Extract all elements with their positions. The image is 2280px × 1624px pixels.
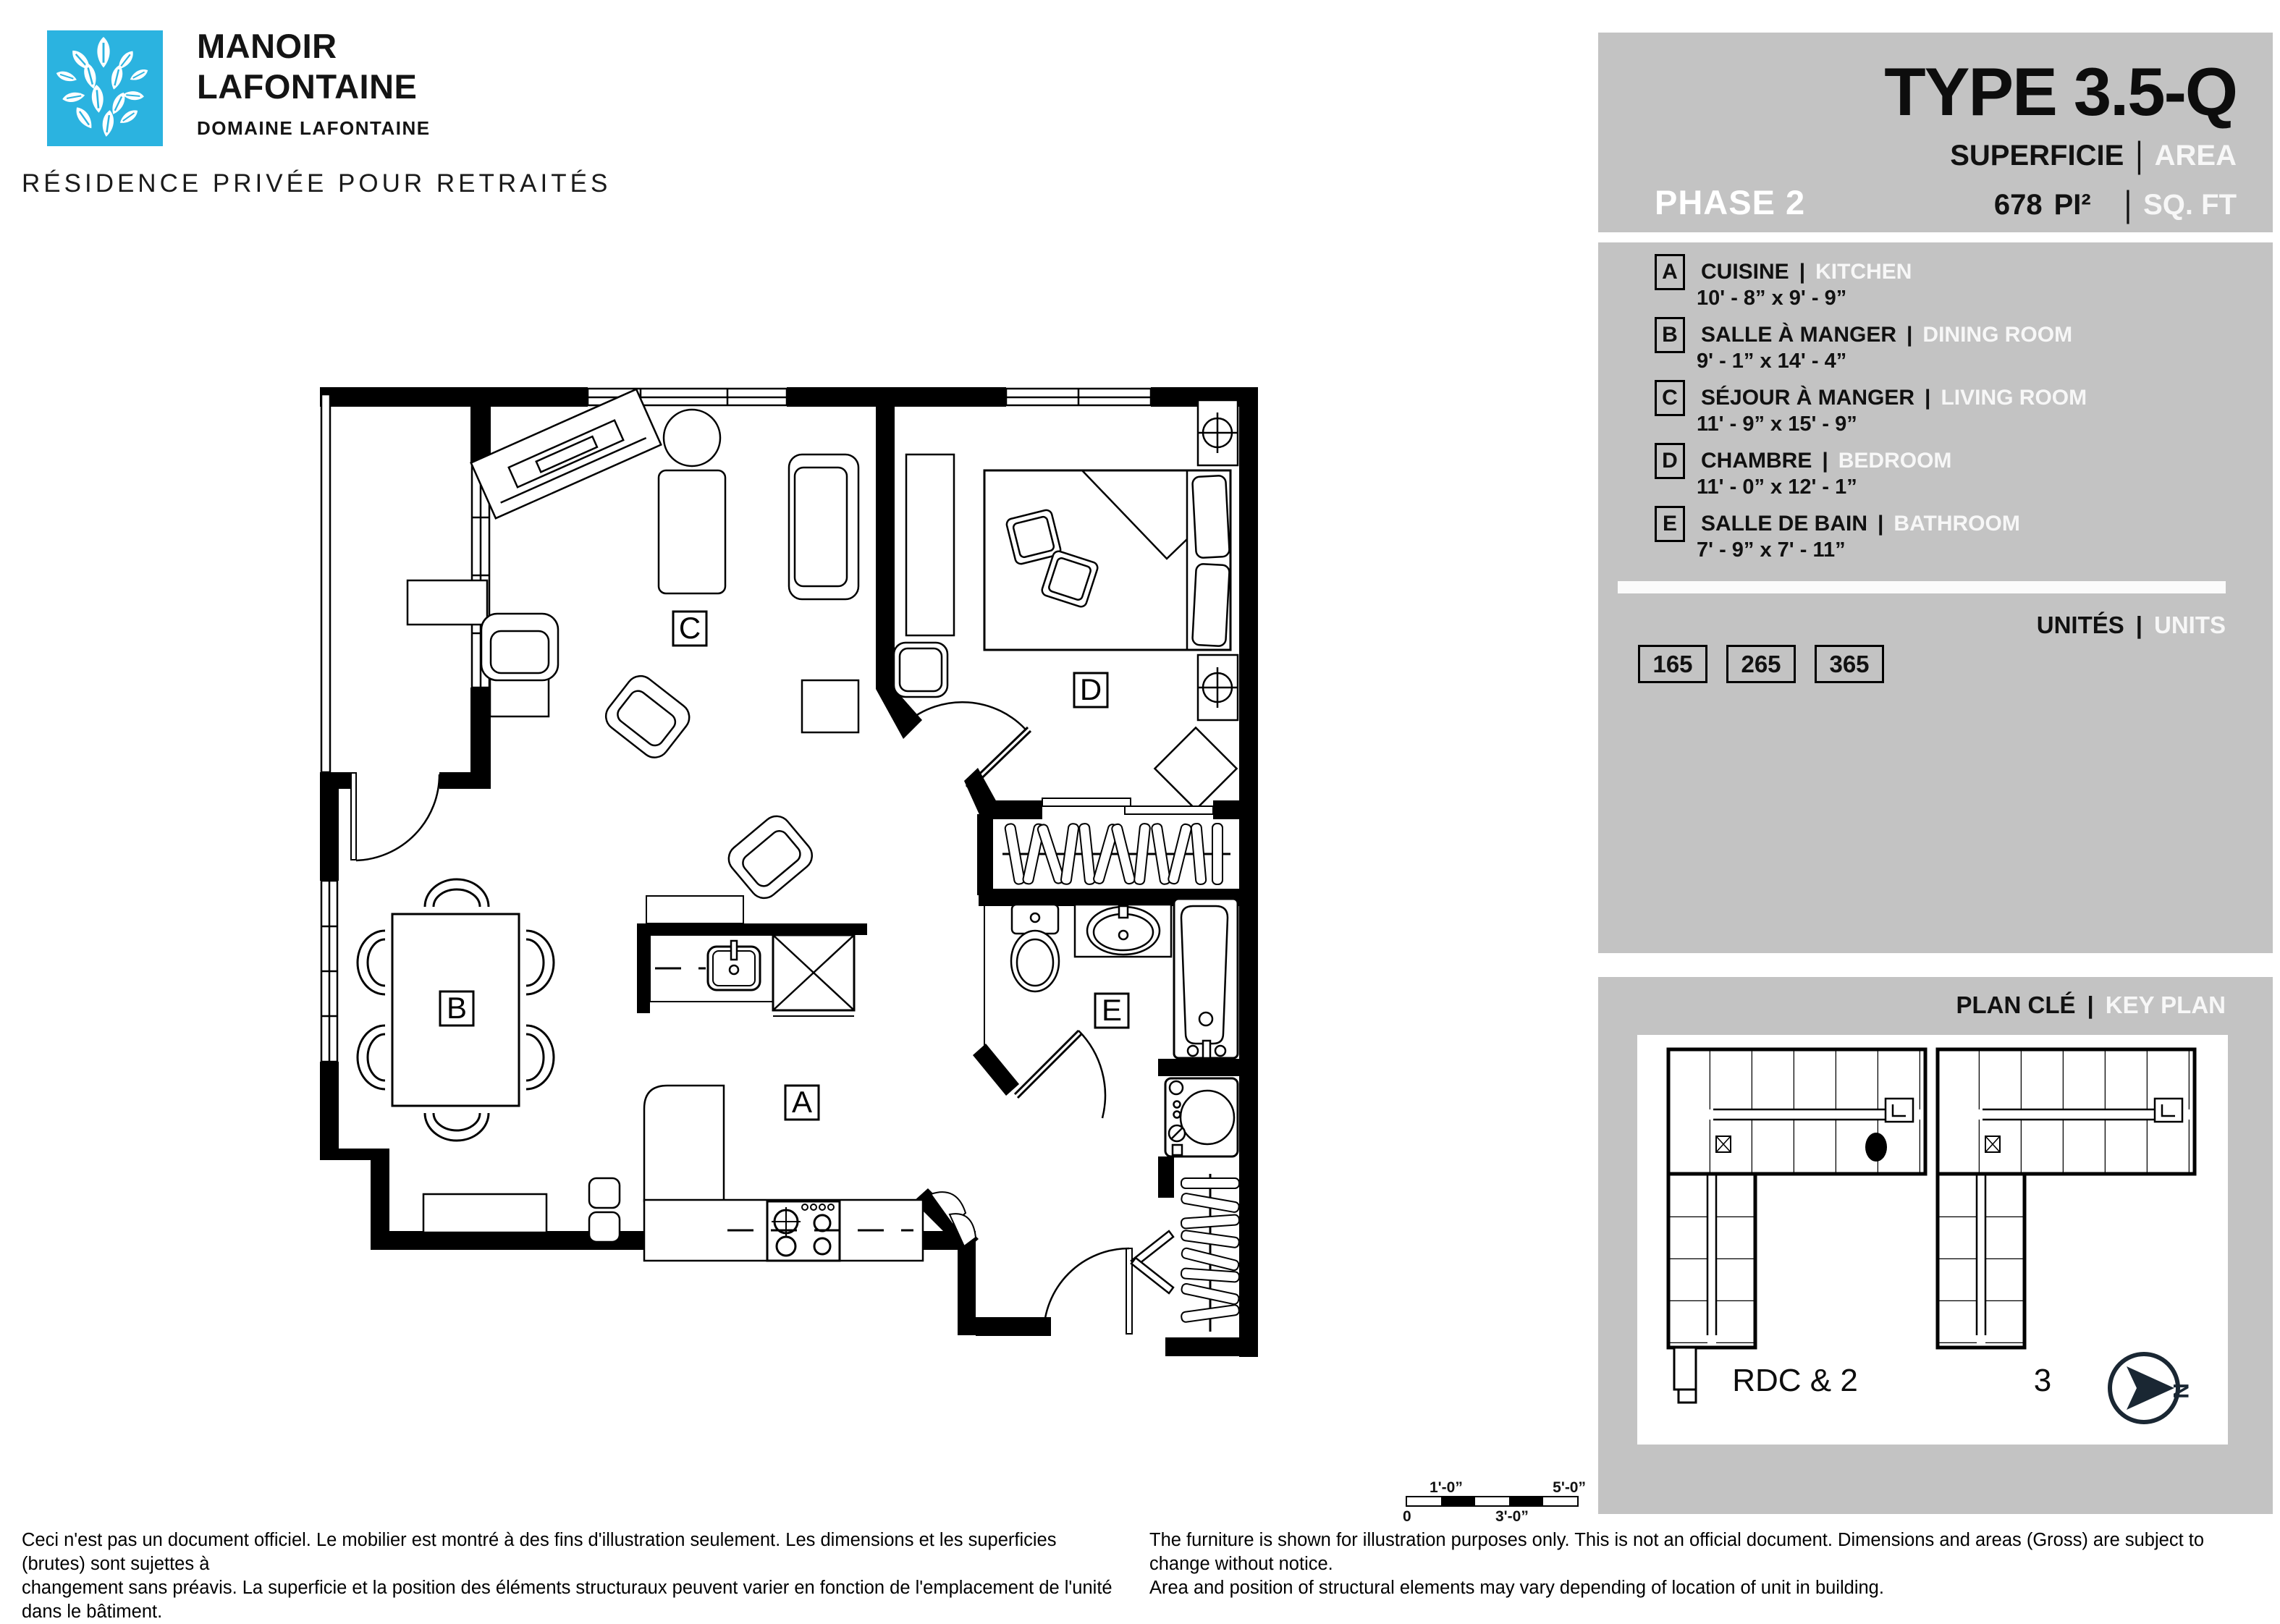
- unit-number-badge: 365: [1815, 645, 1884, 683]
- ottoman: [894, 643, 947, 697]
- sideboard: [423, 1194, 546, 1232]
- area-value-row: 678 PI² | SQ. FT: [1994, 189, 2237, 221]
- sliding-door: [1125, 806, 1213, 814]
- unit-number-badge: 165: [1638, 645, 1707, 683]
- divider-bar: |: [1822, 449, 1828, 473]
- room-label-E: E: [1095, 993, 1128, 1028]
- room-name-en: BEDROOM: [1838, 449, 1952, 473]
- kitchen-fixtures: [589, 896, 976, 1261]
- legend-panel: A CUISINE | KITCHEN 10' - 8” x 9' - 9” B…: [1598, 242, 2273, 953]
- phase-label: PHASE 2: [1655, 182, 1805, 222]
- unit-number-badge: 265: [1726, 645, 1796, 683]
- entry-closet: [1181, 1174, 1239, 1332]
- room-label-B: B: [440, 991, 473, 1025]
- island-bar: [646, 896, 743, 923]
- corner-chair: [1154, 727, 1236, 809]
- entry-door: [1044, 1248, 1132, 1334]
- legend-letter-box: A: [1655, 254, 1685, 290]
- units-label-row: UNITÉS | UNITS: [2037, 612, 2226, 639]
- keyplan-drawing: RDC & 2 3 N: [1637, 1035, 2228, 1445]
- bar-stool: [589, 1212, 620, 1242]
- legend-row-kitchen: A CUISINE | KITCHEN: [1655, 254, 1912, 290]
- room-label-C: C: [673, 611, 706, 646]
- sofa: [789, 454, 858, 599]
- unit-type-title: TYPE 3.5-Q: [1884, 53, 2237, 131]
- svg-text:B: B: [447, 991, 467, 1025]
- area-unit-fr: PI²: [2054, 189, 2091, 221]
- room-name-fr: SÉJOUR À MANGER: [1701, 386, 1914, 410]
- tv-console: [471, 389, 662, 518]
- bar-stool: [589, 1178, 620, 1208]
- disclaimer-en-line2: Area and position of structural elements…: [1149, 1576, 2264, 1600]
- bed: [984, 470, 1230, 650]
- room-dimensions: 10' - 8” x 9' - 9”: [1697, 287, 1846, 310]
- round-side-table: [664, 410, 720, 466]
- vanity-sink: [1075, 905, 1171, 957]
- room-name-fr: SALLE DE BAIN: [1701, 512, 1867, 536]
- keyplan-label-fr: PLAN CLÉ: [1956, 991, 2076, 1019]
- dining-window: [321, 881, 337, 1062]
- scale-3ft-label: 3'-0”: [1495, 1508, 1529, 1526]
- keyplan-panel: PLAN CLÉ | KEY PLAN: [1598, 977, 2273, 1514]
- keyplan-building-left: [1668, 1049, 1925, 1403]
- scale-bar: 1'-0” 5'-0” 0 3'-0”: [1406, 1481, 1576, 1524]
- legend-row-dining: B SALLE À MANGER | DINING ROOM: [1655, 317, 2072, 353]
- keyplan-label-row: PLAN CLÉ | KEY PLAN: [1956, 991, 2226, 1019]
- floorplan-sheet: { "brand": { "name_line1": "MANOIR", "na…: [0, 0, 2280, 1592]
- scale-zero-label: 0: [1403, 1508, 1411, 1526]
- scale-1ft-label: 1'-0”: [1430, 1479, 1463, 1497]
- room-name-fr: CHAMBRE: [1701, 449, 1812, 473]
- separator-bar: [1618, 581, 2226, 593]
- disclaimer-french: Ceci n'est pas un document officiel. Le …: [22, 1528, 1115, 1624]
- armchair: [600, 670, 695, 764]
- divider-bar: |: [2135, 135, 2142, 176]
- bathtub: [1174, 899, 1238, 1058]
- divider-bar: |: [1925, 386, 1930, 410]
- divider-bar: |: [1878, 512, 1883, 536]
- room-name-en: KITCHEN: [1815, 260, 1912, 284]
- area-label-fr: SUPERFICIE: [1950, 140, 2124, 172]
- units-label-fr: UNITÉS: [2037, 612, 2124, 639]
- legend-letter-box: E: [1655, 506, 1685, 542]
- svg-text:D: D: [1080, 672, 1102, 706]
- kitchen-island: [637, 923, 867, 1016]
- room-dimensions: 9' - 1” x 14' - 4”: [1697, 350, 1846, 373]
- area-value: 678: [1994, 189, 2043, 221]
- svg-text:A: A: [792, 1085, 812, 1119]
- kitchen-peninsula: [644, 1086, 724, 1201]
- unit-header-panel: TYPE 3.5-Q SUPERFICIE | AREA 678 PI² | S…: [1598, 33, 2273, 232]
- balcony-railing: [321, 394, 330, 772]
- room-dimensions: 11' - 0” x 12' - 1”: [1697, 475, 1857, 499]
- disclaimer-english: The furniture is shown for illustration …: [1149, 1528, 2264, 1600]
- sliding-door: [1042, 798, 1131, 806]
- divider-bar: |: [1907, 323, 1912, 347]
- console-table: [408, 580, 487, 625]
- keyplan-inset: RDC & 2 3 N: [1637, 1035, 2228, 1445]
- bedroom-window: [1006, 389, 1151, 405]
- legend-letter-box: D: [1655, 443, 1685, 479]
- room-label-A: A: [785, 1085, 819, 1120]
- units-label-en: UNITS: [2154, 612, 2226, 639]
- legend-row-living: C SÉJOUR À MANGER | LIVING ROOM: [1655, 380, 2087, 416]
- keyplan-left-label: RDC & 2: [1732, 1363, 1858, 1398]
- disclaimer-fr-line1: Ceci n'est pas un document officiel. Le …: [22, 1528, 1115, 1576]
- legend-row-bathroom: E SALLE DE BAIN | BATHROOM: [1655, 506, 2020, 542]
- closet-bifold-door: [1131, 1231, 1173, 1293]
- dishwasher: [773, 935, 854, 1016]
- bedroom-furniture: [894, 400, 1238, 810]
- legend-letter-box: B: [1655, 317, 1685, 353]
- scale-bar-segments: [1406, 1496, 1579, 1507]
- balcony-door: [351, 773, 439, 860]
- coffee-table: [659, 470, 725, 593]
- room-name-en: LIVING ROOM: [1941, 386, 2087, 410]
- keyplan-right-label: 3: [2034, 1363, 2051, 1398]
- keyplan-label-en: KEY PLAN: [2106, 991, 2226, 1019]
- area-label-row: SUPERFICIE | AREA: [1950, 140, 2237, 172]
- svg-text:C: C: [679, 611, 701, 645]
- armchair: [481, 614, 558, 680]
- divider-bar: |: [2136, 612, 2142, 639]
- kitchen-sink: [708, 941, 760, 990]
- room-name-en: BATHROOM: [1893, 512, 2019, 536]
- toilet: [1011, 905, 1059, 991]
- bathroom-door: [1015, 1031, 1105, 1118]
- disclaimer-en-line1: The furniture is shown for illustration …: [1149, 1528, 2264, 1576]
- divider-bar: |: [2124, 185, 2132, 225]
- legend-row-bedroom: D CHAMBRE | BEDROOM: [1655, 443, 1951, 479]
- keyplan-building-right: [1938, 1049, 2195, 1348]
- svg-text:E: E: [1102, 993, 1122, 1027]
- divider-bar: |: [1799, 260, 1805, 284]
- dresser: [906, 454, 954, 635]
- armchair: [723, 811, 818, 904]
- room-name-fr: CUISINE: [1701, 260, 1789, 284]
- washer: [1165, 1078, 1238, 1156]
- disclaimer-fr-line2: changement sans préavis. La superficie e…: [22, 1576, 1115, 1624]
- room-name-en: DINING ROOM: [1922, 323, 2072, 347]
- room-label-D: D: [1074, 672, 1107, 707]
- north-compass-icon: N: [2110, 1354, 2192, 1422]
- room-name-fr: SALLE À MANGER: [1701, 323, 1896, 347]
- divider-bar: |: [2087, 991, 2094, 1019]
- legend-letter-box: C: [1655, 380, 1685, 416]
- north-letter: N: [2169, 1383, 2192, 1399]
- area-label-en: AREA: [2155, 140, 2237, 172]
- room-dimensions: 7' - 9” x 7' - 11”: [1697, 538, 1846, 562]
- scale-5ft-label: 5'-0”: [1553, 1479, 1586, 1497]
- room-dimensions: 11' - 9” x 15' - 9”: [1697, 413, 1857, 436]
- sofa-side-table: [802, 680, 858, 732]
- area-unit-en: SQ. FT: [2143, 189, 2237, 221]
